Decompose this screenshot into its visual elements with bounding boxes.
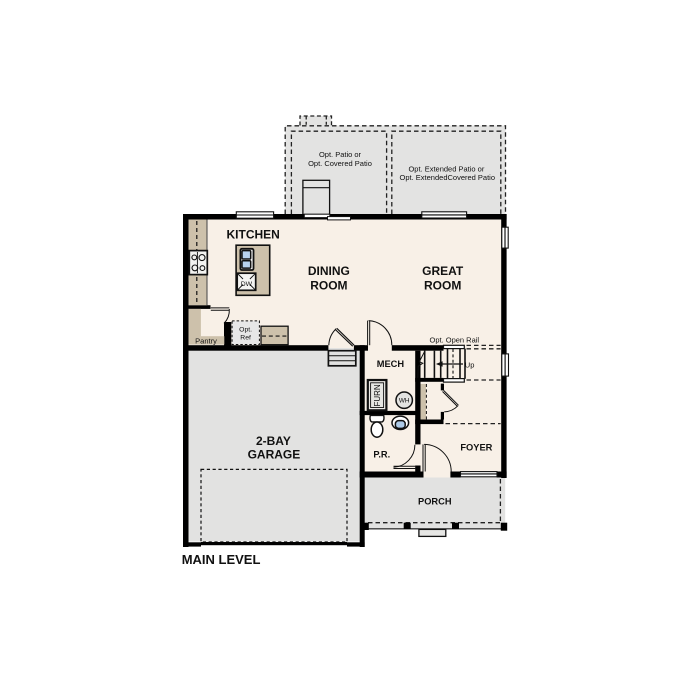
svg-text:2-BAY: 2-BAY bbox=[256, 434, 291, 448]
svg-text:Pantry: Pantry bbox=[195, 336, 217, 345]
svg-text:Opt. Open Rail: Opt. Open Rail bbox=[429, 335, 479, 344]
svg-text:DINING: DINING bbox=[308, 264, 350, 278]
svg-text:ROOM: ROOM bbox=[424, 279, 461, 293]
svg-text:Opt.: Opt. bbox=[239, 327, 252, 334]
svg-text:PORCH: PORCH bbox=[418, 497, 452, 507]
svg-text:P.R.: P.R. bbox=[373, 450, 390, 460]
svg-text:GARAGE: GARAGE bbox=[248, 448, 301, 462]
svg-text:MAIN LEVEL: MAIN LEVEL bbox=[182, 552, 261, 567]
svg-text:Opt. Patio or: Opt. Patio or bbox=[319, 150, 362, 159]
svg-text:FOYER: FOYER bbox=[460, 443, 492, 453]
svg-text:Up: Up bbox=[465, 360, 475, 369]
svg-text:Ref: Ref bbox=[240, 334, 251, 341]
svg-text:KITCHEN: KITCHEN bbox=[227, 227, 280, 241]
svg-text:Opt. Covered Patio: Opt. Covered Patio bbox=[308, 159, 372, 168]
svg-text:GREAT: GREAT bbox=[422, 264, 464, 278]
svg-text:ROOM: ROOM bbox=[310, 279, 347, 293]
svg-text:DW: DW bbox=[241, 281, 253, 288]
svg-text:MECH: MECH bbox=[377, 359, 405, 369]
svg-text:Opt. ExtendedCovered Patio: Opt. ExtendedCovered Patio bbox=[400, 173, 495, 182]
svg-text:WH: WH bbox=[399, 398, 410, 405]
svg-text:FURN: FURN bbox=[373, 384, 382, 406]
